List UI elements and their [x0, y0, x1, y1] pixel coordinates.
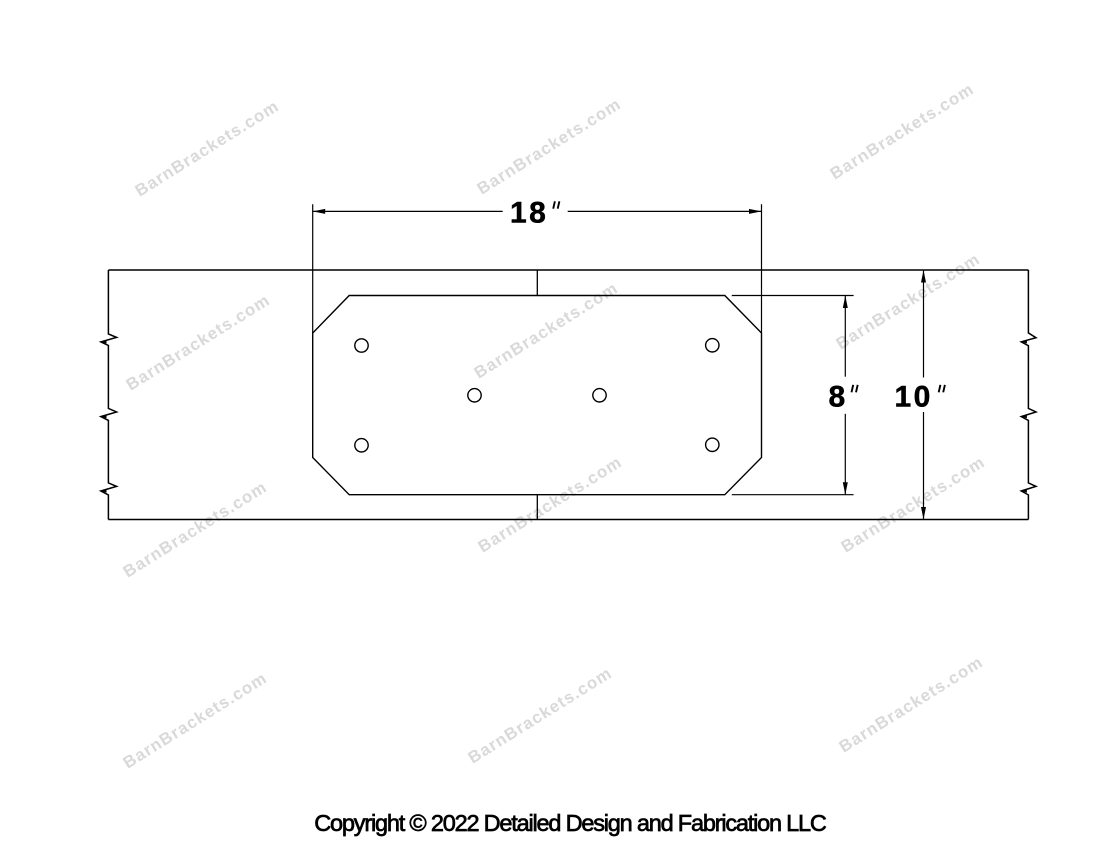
svg-text:18: 18 — [510, 196, 548, 229]
svg-text:10: 10 — [895, 381, 933, 414]
svg-text:Copyright © 2022 Detailed Desi: Copyright © 2022 Detailed Design and Fab… — [314, 810, 827, 836]
svg-text:8: 8 — [829, 381, 848, 414]
